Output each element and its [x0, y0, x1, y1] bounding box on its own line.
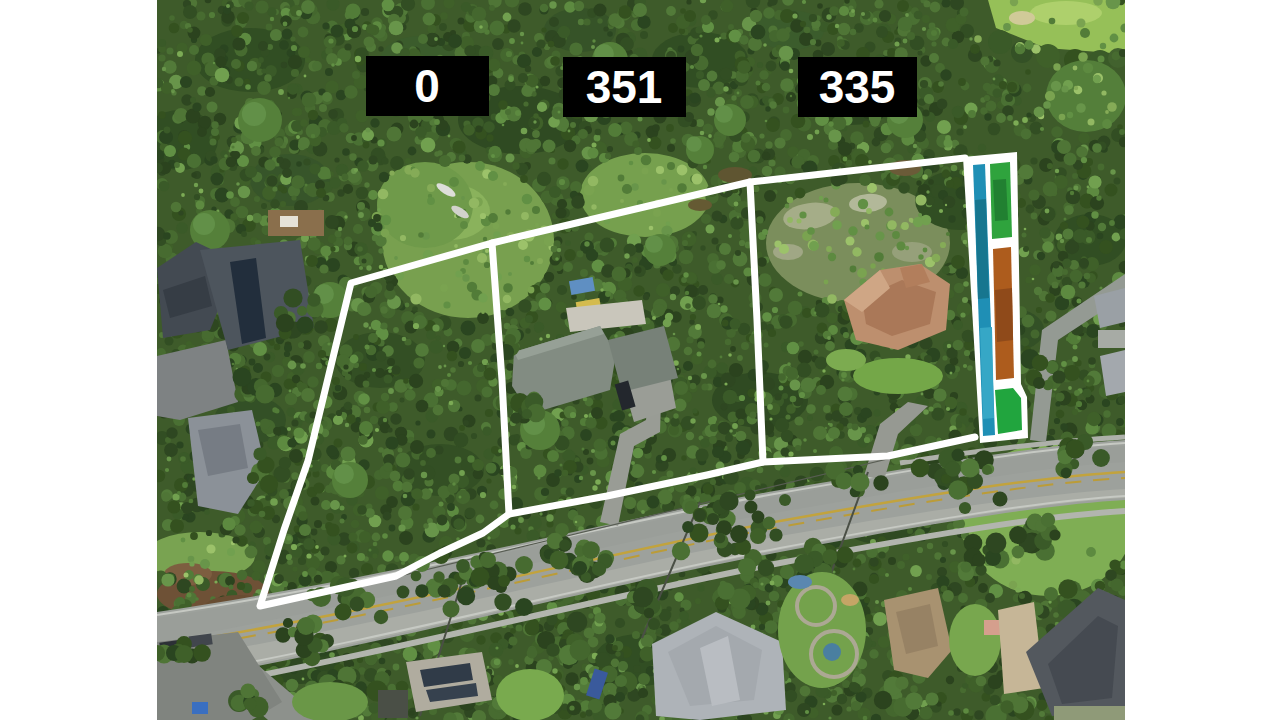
svg-text:335: 335 — [819, 61, 896, 113]
svg-text:351: 351 — [586, 61, 663, 113]
svg-text:0: 0 — [414, 60, 440, 112]
